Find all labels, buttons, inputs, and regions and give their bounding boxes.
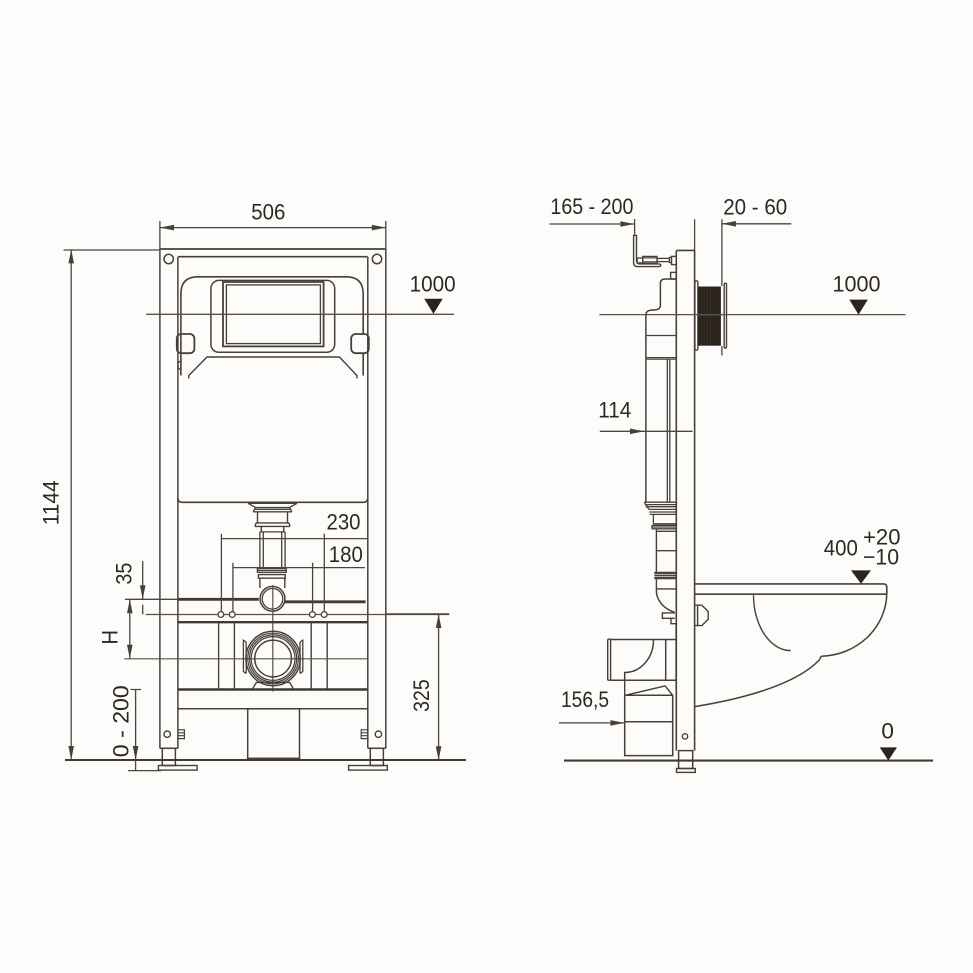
svg-text:156,5: 156,5	[561, 687, 609, 712]
svg-text:20 - 60: 20 - 60	[723, 194, 787, 219]
svg-text:H: H	[98, 630, 123, 645]
svg-text:1144: 1144	[39, 480, 64, 525]
svg-text:325: 325	[409, 679, 434, 712]
svg-text:180: 180	[329, 542, 363, 567]
svg-text:165 - 200: 165 - 200	[550, 194, 633, 219]
svg-text:0: 0	[881, 719, 894, 744]
svg-text:400: 400	[824, 535, 858, 560]
svg-text:506: 506	[251, 200, 285, 225]
svg-text:35: 35	[112, 563, 137, 585]
svg-text:1000: 1000	[833, 272, 881, 297]
svg-text:−10: −10	[863, 545, 899, 570]
svg-text:0 - 200: 0 - 200	[109, 685, 134, 757]
svg-text:230: 230	[327, 509, 361, 534]
svg-text:114: 114	[598, 397, 631, 422]
svg-text:1000: 1000	[410, 272, 456, 297]
